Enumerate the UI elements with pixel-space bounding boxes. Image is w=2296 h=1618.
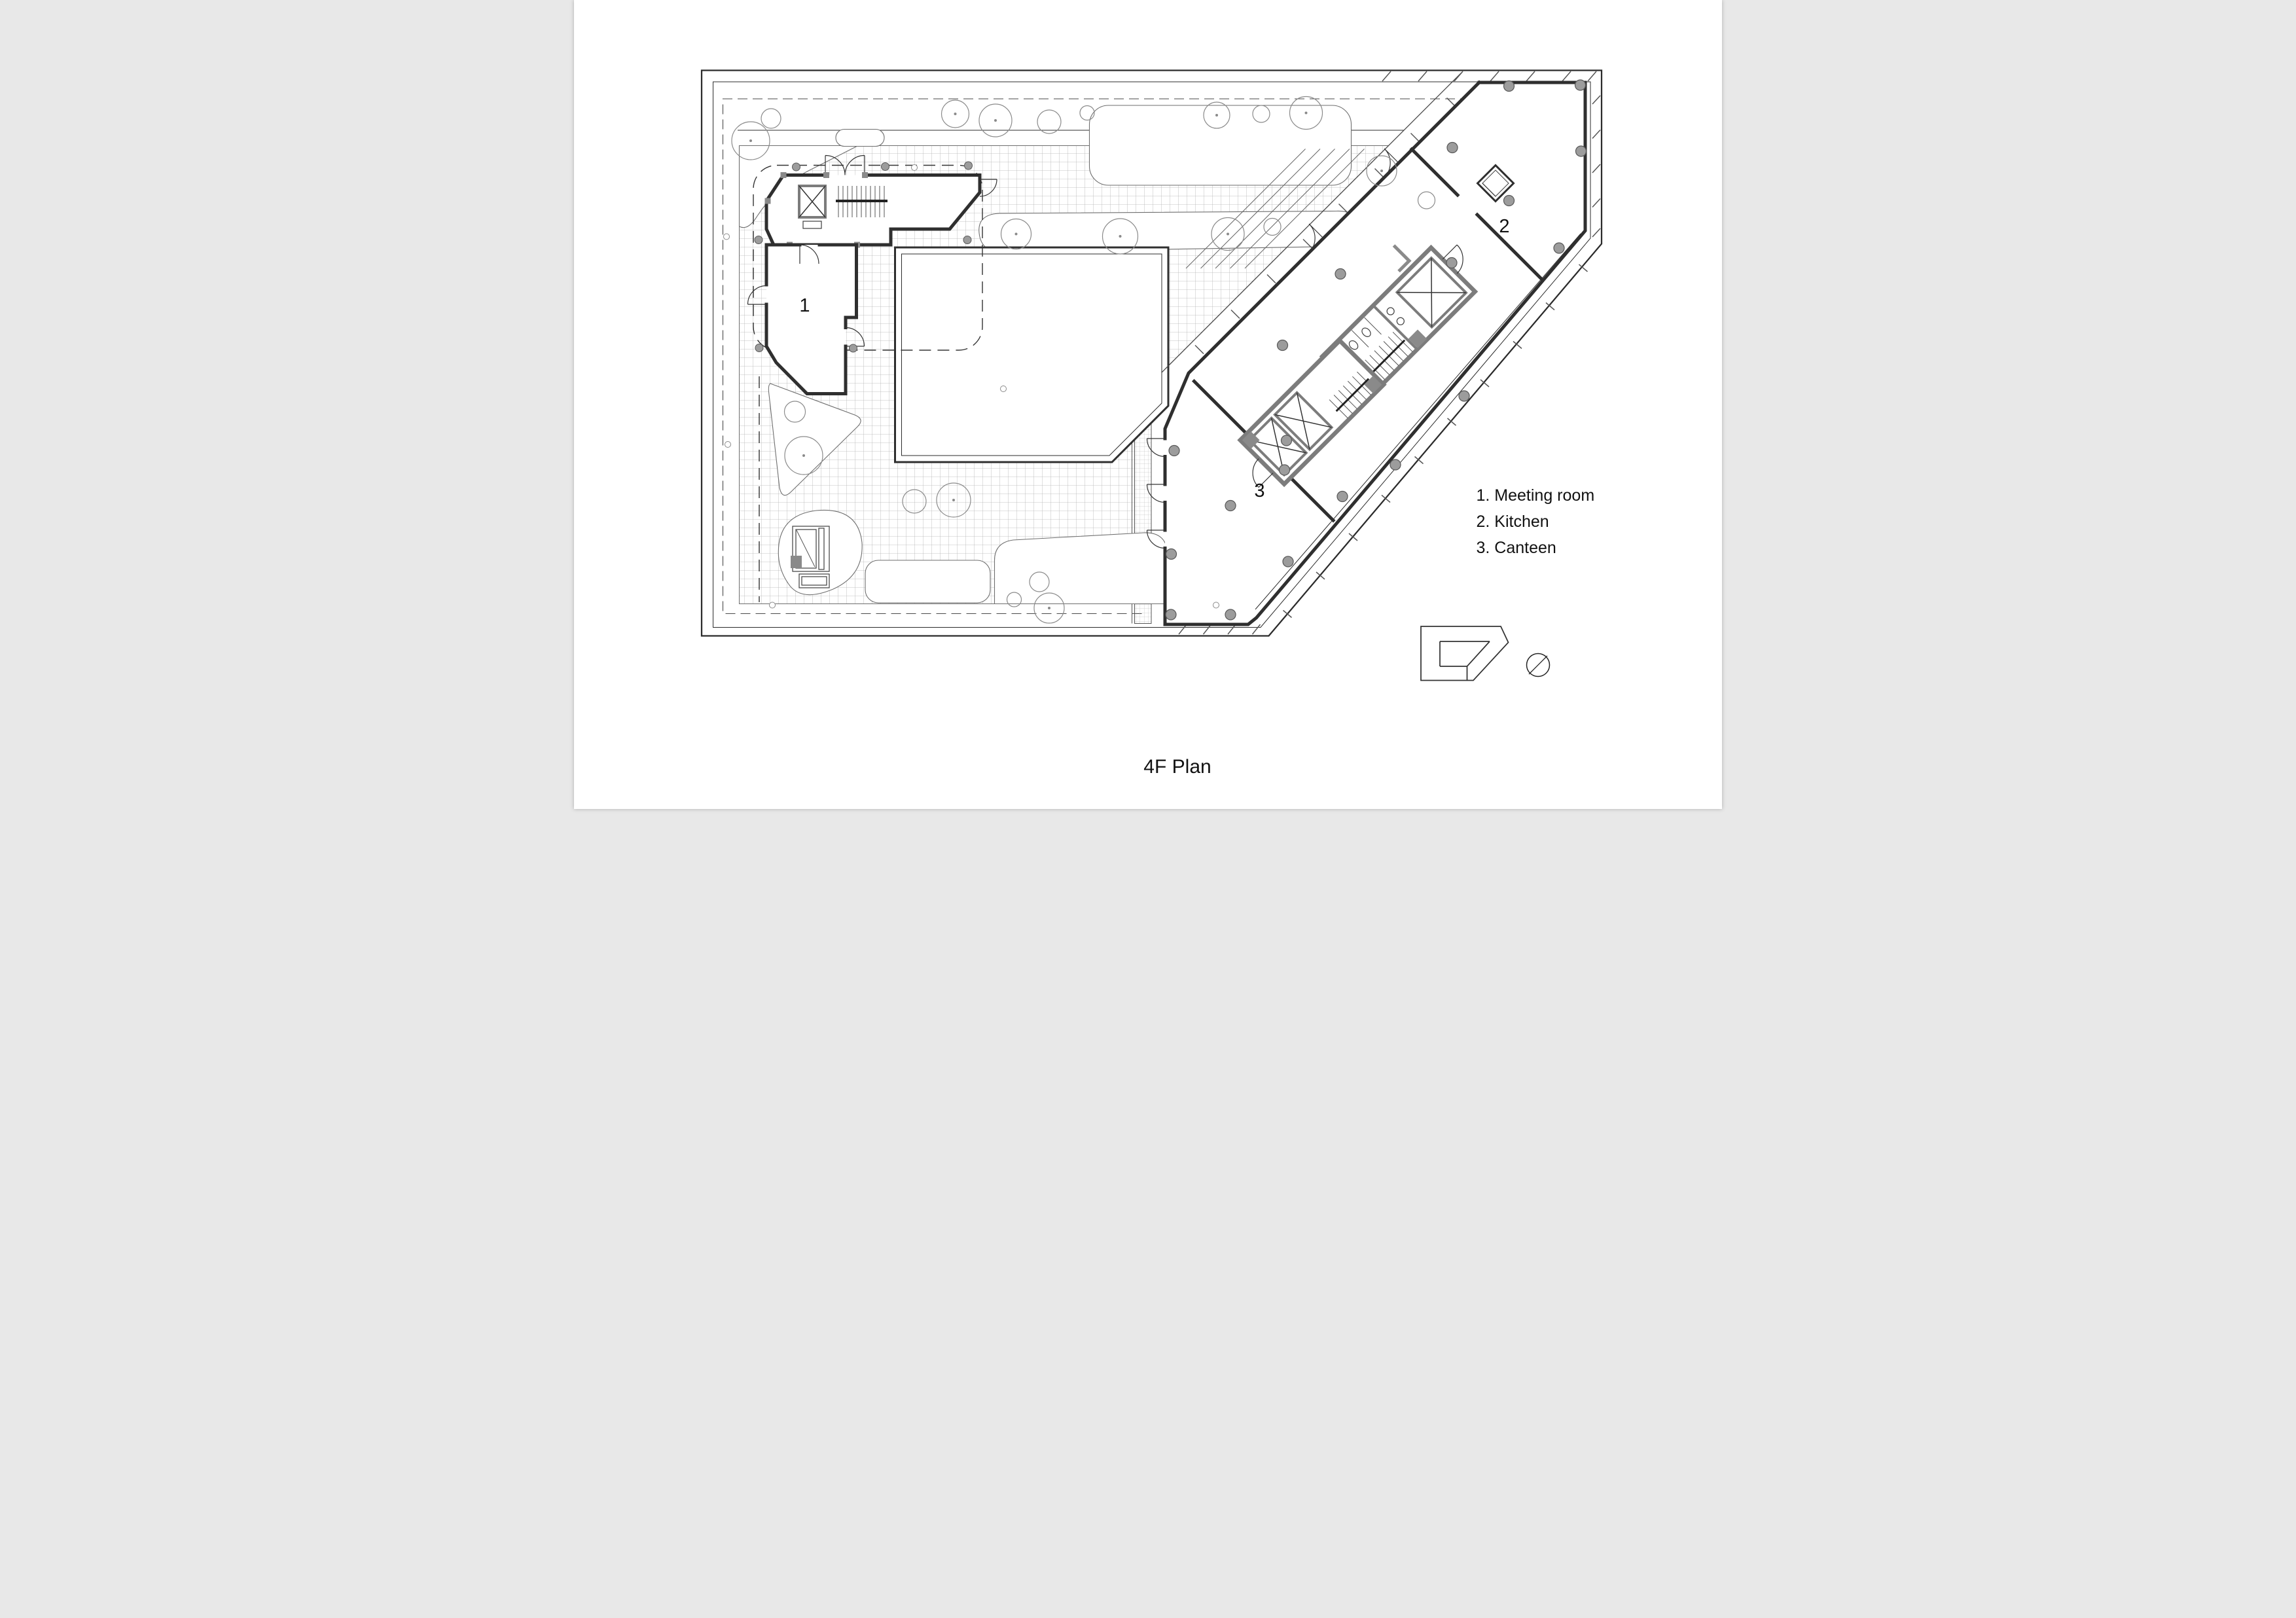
key-plan-icon bbox=[1421, 626, 1509, 681]
room-label-3: 3 bbox=[1254, 480, 1265, 501]
drawing-sheet: 1 2 3 1. Meeting room 2. Kitchen 3. Cant… bbox=[574, 0, 1722, 809]
floor-plan-canvas: 1 2 3 1. Meeting room 2. Kitchen 3. Cant… bbox=[574, 0, 1722, 809]
planting-area bbox=[995, 533, 1168, 604]
legend-item-canteen: 3. Canteen bbox=[1477, 539, 1556, 557]
planter bbox=[836, 130, 884, 147]
planting-area bbox=[865, 560, 990, 603]
legend: 1. Meeting room 2. Kitchen 3. Canteen bbox=[1477, 486, 1595, 557]
sheet-title: 4F Plan bbox=[1143, 756, 1211, 778]
legend-item-meeting-room: 1. Meeting room bbox=[1477, 486, 1595, 505]
central-void bbox=[895, 247, 1169, 462]
room-label-1: 1 bbox=[799, 295, 810, 316]
north-arrow-icon bbox=[1527, 654, 1550, 677]
room-label-2: 2 bbox=[1499, 216, 1509, 237]
planting-island bbox=[1090, 105, 1352, 185]
legend-item-kitchen: 2. Kitchen bbox=[1477, 512, 1549, 531]
